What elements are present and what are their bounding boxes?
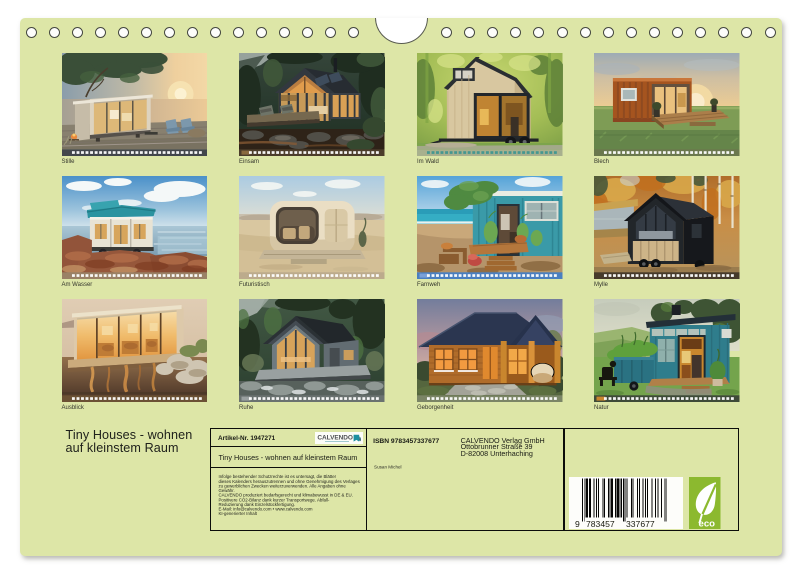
svg-text:KI-generierter Inhalt: KI-generierter Inhalt <box>218 511 257 516</box>
svg-text:zu gewerblichen Zwecken weiter: zu gewerblichen Zwecken weiterzuverwende… <box>218 483 346 488</box>
svg-text:337677: 337677 <box>626 519 655 529</box>
svg-text:9: 9 <box>575 519 580 529</box>
svg-text:CALVENDO: CALVENDO <box>317 435 353 442</box>
svg-text:eco: eco <box>699 518 716 529</box>
svg-text:Susan Michel: Susan Michel <box>374 465 402 470</box>
svg-text:783457: 783457 <box>586 519 615 529</box>
